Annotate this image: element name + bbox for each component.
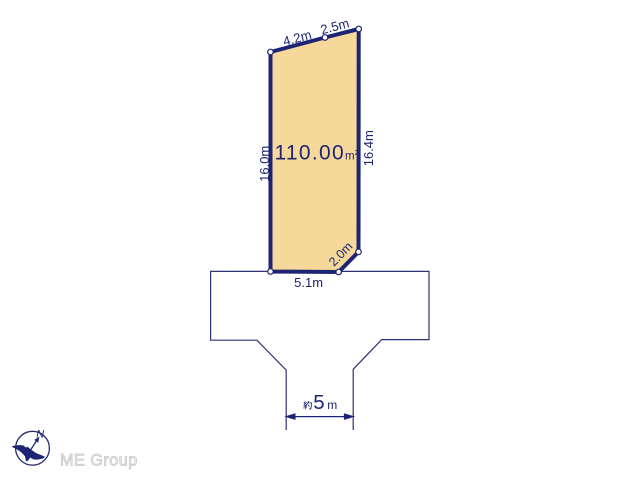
svg-text:N: N: [36, 429, 44, 441]
svg-text:m: m: [327, 398, 337, 412]
svg-text:16.4m: 16.4m: [361, 130, 376, 166]
svg-text:5.1m: 5.1m: [294, 275, 323, 290]
svg-text:5: 5: [313, 391, 324, 414]
svg-text:ME Group: ME Group: [60, 451, 138, 469]
svg-text:16.0m: 16.0m: [257, 146, 272, 182]
